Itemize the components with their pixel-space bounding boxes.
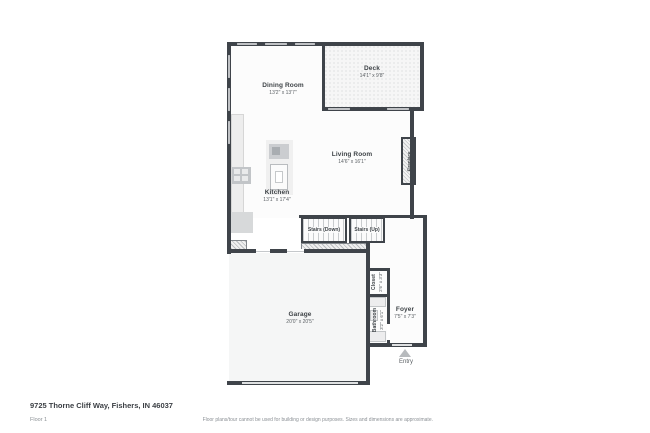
stairs-up: Stairs (Up) (349, 217, 385, 243)
wall-closet-right (387, 268, 390, 297)
garage-floor (229, 252, 367, 382)
deck-floor (324, 45, 421, 108)
sliding-door (328, 108, 350, 111)
stove-icon (269, 144, 289, 159)
wall-deck-right (420, 42, 424, 111)
garage-door (242, 382, 358, 384)
stairs-down: Stairs (Down) (301, 217, 347, 243)
window (228, 55, 231, 78)
wall-stairs-top (299, 215, 427, 218)
disclaimer-text: Floor plans/tour cannot be used for buil… (203, 417, 433, 423)
floorplan-page: Stairs (Down) Stairs (Up) Fireplace (0, 0, 650, 433)
pantry-counter (230, 212, 253, 233)
bathroom-vanity (369, 297, 386, 307)
shower-icon (369, 331, 386, 342)
wall-deck-bottom (322, 107, 424, 111)
wall-garage-bottom (227, 381, 370, 385)
wall-right-upper (410, 107, 414, 219)
wall-left-exterior (227, 42, 231, 254)
window (228, 121, 231, 144)
wall-foyer-bottom (366, 343, 427, 347)
wall-oven-icon (232, 167, 251, 184)
sink-icon (270, 164, 288, 190)
kitchen-counter (231, 114, 244, 213)
wall-top-exterior (227, 42, 325, 46)
window (265, 43, 287, 46)
entry-door (392, 344, 412, 346)
wall-deck-left (322, 46, 325, 111)
floor-indicator: Floor 1 (30, 417, 47, 423)
entry-arrow-icon (399, 349, 411, 357)
stairs-down-label: Stairs (Down) (307, 227, 341, 233)
door-leaf (287, 251, 304, 252)
entry-label: Entry (399, 359, 413, 365)
wall-garage-top (227, 249, 369, 253)
wall-hall-divider (366, 243, 370, 384)
window (237, 43, 257, 46)
property-address: 9725 Thorne Cliff Way, Fishers, IN 46037 (30, 401, 173, 410)
window (387, 108, 409, 111)
wall-right-lower (423, 215, 427, 347)
door-opening (387, 324, 390, 340)
wall-bathroom-right (387, 294, 390, 347)
window (295, 43, 315, 46)
window (228, 88, 231, 111)
wall-deck-top (322, 42, 424, 46)
door-leaf (256, 251, 270, 252)
toilet-icon (370, 310, 378, 321)
stairs-up-label: Stairs (Up) (353, 227, 380, 233)
